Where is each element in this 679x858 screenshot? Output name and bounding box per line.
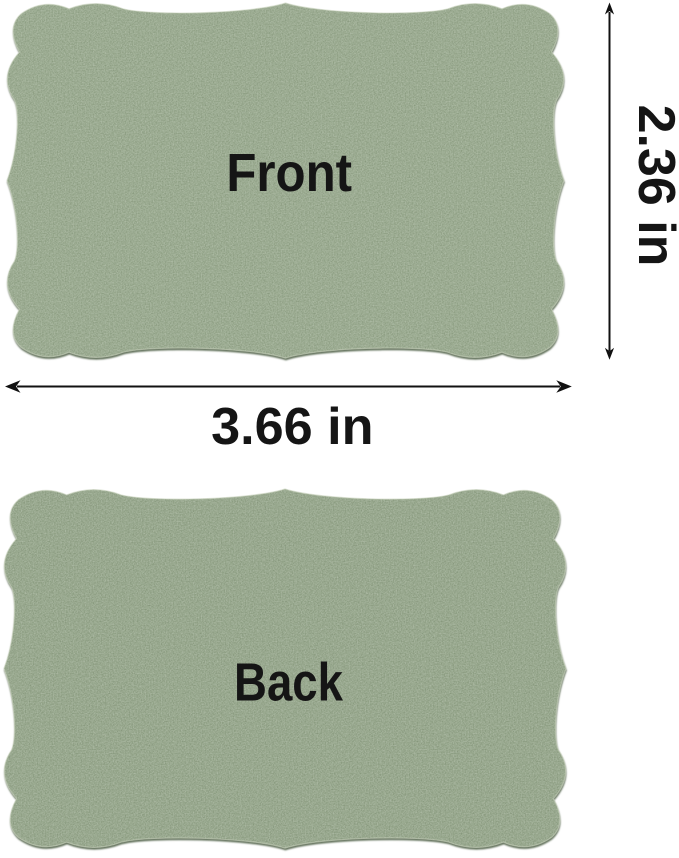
svg-text:2.36 in: 2.36 in xyxy=(627,105,679,267)
svg-text:Front: Front xyxy=(226,142,352,202)
svg-text:3.66 in: 3.66 in xyxy=(211,398,373,456)
svg-text:Back: Back xyxy=(234,652,343,712)
